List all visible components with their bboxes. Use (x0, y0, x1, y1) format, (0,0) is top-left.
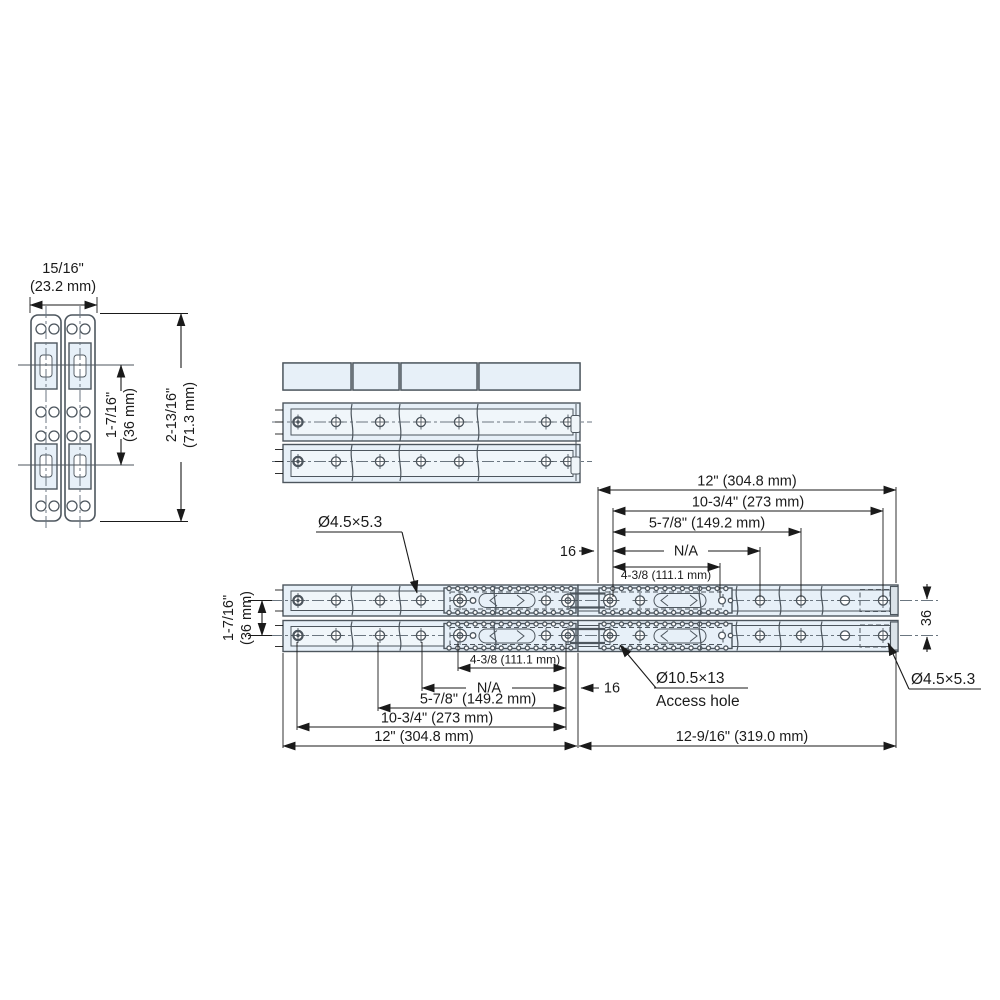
dim-111-bottom: 4-3/8 (111.1 mm) (470, 653, 560, 667)
dim-149-bottom: 5-7/8" (149.2 mm) (420, 692, 536, 708)
access-hole-dia-label: Ø10.5×13 (656, 670, 725, 687)
ball-carriage-bottom-right (599, 624, 733, 649)
dim-overall-bottom: 12" (304.8 mm) (374, 729, 473, 745)
dimensions-bottom: 4-3/8 (111.1 mm) N/A 16 5-7/8" (149.2 mm… (283, 642, 896, 748)
ball-carriage-bottom-left (444, 624, 578, 649)
dim-111-top: 4-3/8 (111.1 mm) (621, 568, 711, 582)
dim-rowspacing-left-mm: (36 mm) (239, 591, 255, 645)
row-spacing-mm-label: (36 mm) (122, 388, 138, 442)
ball-carriage-top-right (599, 588, 733, 613)
dim-rowspacing-left-inch: 1-7/16" (221, 595, 237, 641)
dimensions-top: 12" (304.8 mm) 10-3/4" (273 mm) 5-7/8" (… (560, 474, 896, 598)
strip-segment (479, 363, 580, 390)
strip-segment (353, 363, 399, 390)
closed-side-view (272, 403, 592, 483)
cross-width-mm-label: (23.2 mm) (30, 279, 96, 295)
screw-hole-callout-top: Ø4.5×5.3 (318, 514, 382, 531)
top-view-strip (283, 363, 580, 390)
dim-na-top: N/A (674, 544, 699, 560)
drawer-slide-drawing: 15/16" (23.2 mm) 1-7/16" (36 mm) (0, 0, 1000, 1000)
cross-width-inch-label: 15/16" (42, 261, 83, 277)
height-mm-label: (71.3 mm) (182, 382, 198, 448)
dim-149-top: 5-7/8" (149.2 mm) (649, 516, 765, 532)
dim-extension: 12-9/16" (319.0 mm) (676, 729, 808, 745)
screw-hole-callout-right: Ø4.5×5.3 (911, 671, 975, 688)
row-spacing-inch-label: 1-7/16" (104, 392, 120, 438)
height-inch-label: 2-13/16" (164, 388, 180, 442)
access-hole-text-label: Access hole (656, 693, 740, 710)
left-edge-ticks-extended (275, 590, 283, 647)
dim-overall-top: 12" (304.8 mm) (697, 474, 796, 490)
extended-side-view (270, 585, 938, 652)
cross-section-view: 15/16" (23.2 mm) 1-7/16" (36 mm) (18, 261, 198, 530)
dim-rowspacing-right: 36 (919, 610, 935, 626)
ball-carriage-top-left (444, 588, 578, 613)
technical-drawing-page: 15/16" (23.2 mm) 1-7/16" (36 mm) (0, 0, 1000, 1000)
strip-segment (283, 363, 351, 390)
left-edge-ticks (275, 410, 283, 474)
strip-segment (401, 363, 477, 390)
dim-273-bottom: 10-3/4" (273 mm) (381, 711, 493, 727)
dim-16-top: 16 (560, 544, 576, 560)
dim-273-top: 10-3/4" (273 mm) (692, 495, 804, 511)
dim-16-bottom: 16 (604, 681, 620, 697)
